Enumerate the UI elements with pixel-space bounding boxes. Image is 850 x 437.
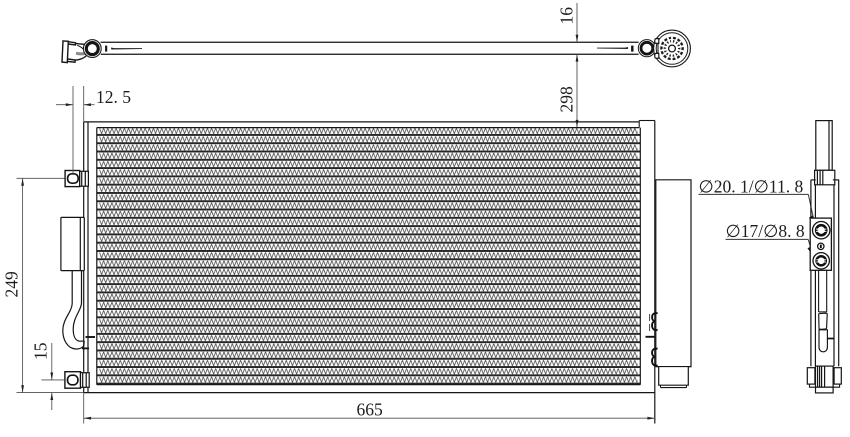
svg-text:∅17/∅8. 8: ∅17/∅8. 8 [726, 221, 805, 241]
svg-text:15: 15 [31, 342, 51, 360]
svg-text:665: 665 [357, 399, 384, 419]
svg-text:249: 249 [2, 271, 22, 298]
svg-text:∅20. 1/∅11. 8: ∅20. 1/∅11. 8 [699, 177, 804, 197]
svg-text:16: 16 [557, 7, 577, 25]
svg-text:12. 5: 12. 5 [96, 87, 131, 107]
svg-text:298: 298 [557, 86, 577, 113]
